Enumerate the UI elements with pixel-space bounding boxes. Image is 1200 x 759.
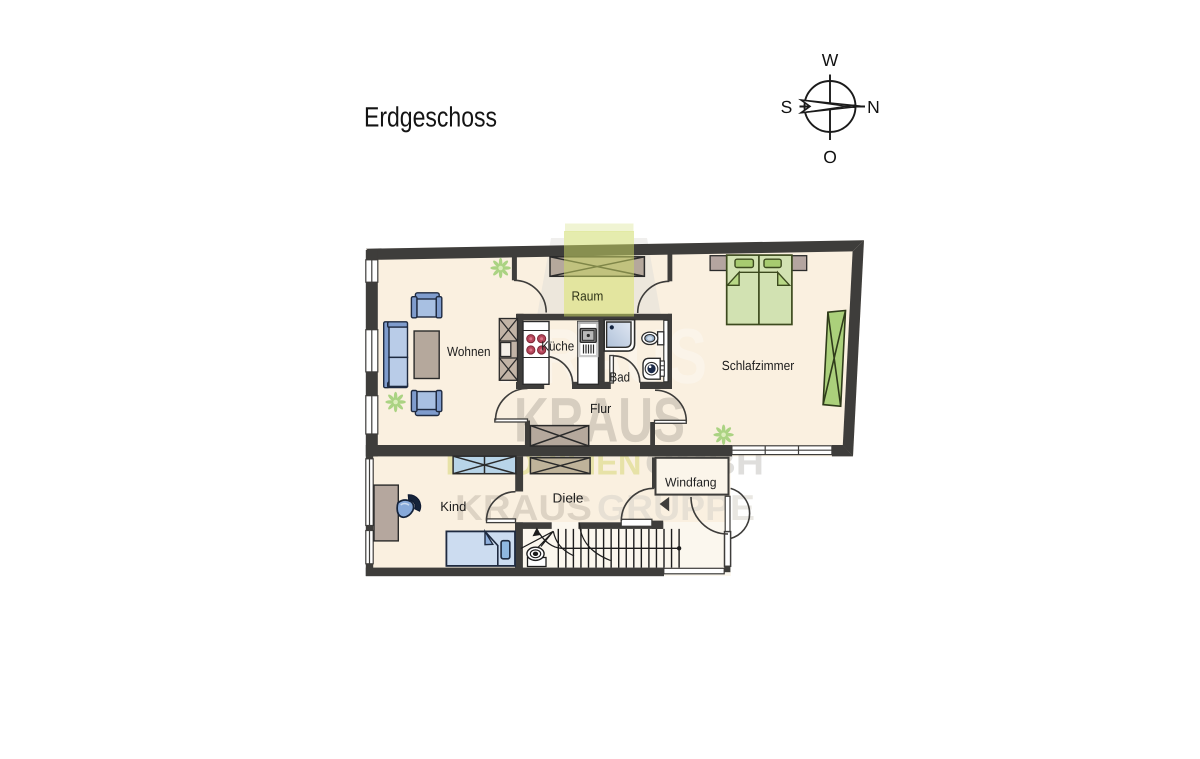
svg-text:Wohnen: Wohnen bbox=[447, 344, 491, 359]
svg-text:Erdgeschoss: Erdgeschoss bbox=[364, 102, 497, 133]
svg-text:N: N bbox=[867, 97, 880, 117]
svg-text:Kind: Kind bbox=[440, 499, 466, 514]
svg-text:Raum: Raum bbox=[572, 288, 604, 303]
svg-text:Schlafzimmer: Schlafzimmer bbox=[722, 358, 795, 373]
svg-text:Küche: Küche bbox=[541, 339, 574, 354]
svg-text:Flur: Flur bbox=[590, 401, 612, 416]
svg-text:S: S bbox=[781, 97, 793, 117]
svg-text:O: O bbox=[823, 147, 837, 167]
svg-text:Diele: Diele bbox=[553, 491, 584, 506]
svg-text:Bad: Bad bbox=[610, 370, 631, 385]
svg-text:W: W bbox=[822, 50, 839, 70]
svg-text:Windfang: Windfang bbox=[665, 475, 717, 489]
